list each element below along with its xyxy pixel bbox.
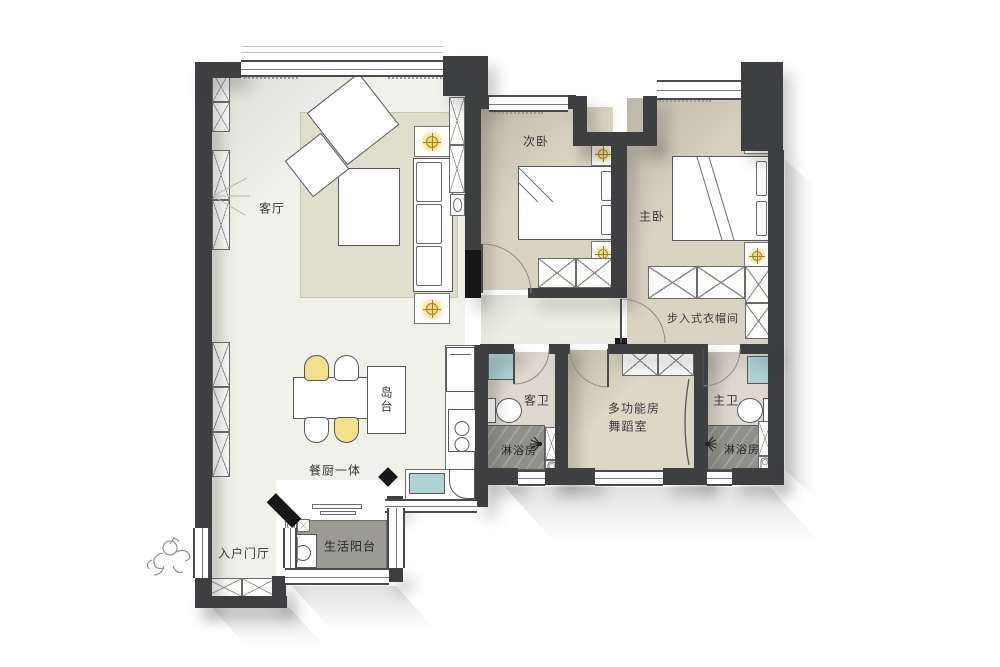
curtain-icon xyxy=(388,74,442,79)
lamp-icon xyxy=(748,247,766,265)
wall-bath-top xyxy=(608,344,703,354)
wall-bath-top xyxy=(740,344,775,354)
floor-plan-canvas: 岛台 xyxy=(0,0,1000,667)
wall-bedroom-bottom xyxy=(528,288,613,298)
entry-foyer-label: 入户门厅 xyxy=(218,545,270,562)
wardrobe-cell xyxy=(538,258,576,288)
pillow xyxy=(756,161,767,196)
wall-bottom xyxy=(663,468,707,485)
coffee-table xyxy=(338,168,400,246)
wall-entry-corner xyxy=(272,576,286,606)
guest-bathroom-sink xyxy=(488,353,514,380)
guest-shower-label: 淋浴房 xyxy=(501,442,537,458)
guest-toilet-bowl xyxy=(496,398,522,423)
secondary-bedroom-label: 次卧 xyxy=(523,133,549,150)
shadow-streak xyxy=(505,487,822,545)
storage-cabinet-cell xyxy=(212,200,230,250)
balcony-side-window xyxy=(387,508,405,568)
bath-window xyxy=(707,470,732,486)
sofa xyxy=(413,158,453,292)
wall-right xyxy=(768,150,784,485)
closet-wardrobe-cell xyxy=(697,266,745,299)
bath-window xyxy=(518,470,545,486)
dining-table xyxy=(293,377,368,419)
wall-pillar xyxy=(443,56,488,96)
wall-bedroom-divider xyxy=(611,146,627,298)
master-shower-label: 淋浴房 xyxy=(724,441,760,457)
dining-chair xyxy=(304,355,329,381)
balcony-bottom-window xyxy=(285,568,389,585)
shadow-streak xyxy=(785,160,817,499)
dance-studio-label: 舞蹈室 xyxy=(608,418,647,435)
side-table xyxy=(414,126,450,157)
wall-living-bedroom-dark xyxy=(465,250,481,298)
multifunction-window xyxy=(595,470,663,486)
utility-balcony-label: 生活阳台 xyxy=(324,538,376,555)
kitchen-island-label: 岛台 xyxy=(378,386,395,414)
lamp-icon xyxy=(594,145,612,163)
drying-rack xyxy=(312,504,362,509)
entry-door-opening xyxy=(193,528,210,578)
lamp-icon xyxy=(420,130,444,154)
master-bed xyxy=(672,156,770,241)
wall-top-left-corner xyxy=(195,62,241,78)
master-toilet-bowl xyxy=(737,398,763,423)
multifunction-room-label: 多功能房 xyxy=(608,400,660,417)
nightstand xyxy=(744,242,770,269)
sofa-cushion xyxy=(416,246,442,286)
dining-chair xyxy=(304,417,329,443)
wardrobe-cell xyxy=(576,258,613,288)
kitchen-sink xyxy=(409,473,445,494)
wall-u-niche-bottom xyxy=(573,132,657,146)
wall-bottom xyxy=(545,468,595,485)
wall-bottom xyxy=(480,468,518,485)
living-room-label: 客厅 xyxy=(259,200,285,217)
guest-toilet-tank xyxy=(487,398,496,423)
dining-kitchen-label: 餐厨一体 xyxy=(309,462,361,479)
wall-bath-divider xyxy=(555,344,568,480)
master-bathroom-label: 主卫 xyxy=(713,392,739,409)
pillow xyxy=(756,201,767,236)
storage-cabinet-cell xyxy=(212,150,230,200)
window-sill-line xyxy=(241,46,443,47)
storage-cabinet-cell xyxy=(212,432,230,477)
shadow-streak xyxy=(212,608,326,648)
stove xyxy=(448,409,476,452)
tall-cabinet-cell xyxy=(449,145,465,193)
master-bedroom-label: 主卧 xyxy=(639,208,665,225)
wall-top-right-corner xyxy=(741,62,783,151)
wall-jamb xyxy=(481,95,489,109)
curtain-icon xyxy=(244,74,298,79)
window-sill-line xyxy=(241,52,443,53)
dining-chair xyxy=(334,355,359,381)
storage-cabinet-cell xyxy=(212,387,230,432)
guest-bathroom-label: 客卫 xyxy=(524,392,550,409)
entry-foyer-floor xyxy=(210,478,276,582)
secondary-bed xyxy=(518,166,615,240)
wall-bath-divider xyxy=(694,344,708,480)
balcony-left-window xyxy=(283,528,297,568)
walk-in-closet-label: 步入式衣帽间 xyxy=(667,310,739,326)
corridor-floor xyxy=(481,295,622,344)
mascot-doodle xyxy=(148,538,190,575)
shadow-streak xyxy=(292,586,437,632)
shoe-cabinet-cell xyxy=(242,578,276,597)
side-table xyxy=(414,293,450,324)
kitchen-island: 岛台 xyxy=(367,366,406,434)
refrigerator xyxy=(446,347,475,392)
wall-left xyxy=(195,62,212,608)
tall-cabinet-cell xyxy=(449,97,465,145)
sofa-cushion xyxy=(416,204,442,244)
lamp-icon xyxy=(420,297,444,321)
wall-bottom xyxy=(732,468,775,485)
water-heater xyxy=(450,194,465,216)
storage-cabinet-cell xyxy=(212,102,230,132)
storage-cabinet-cell xyxy=(212,342,230,387)
sofa-cushion xyxy=(416,162,442,202)
dining-chair xyxy=(334,417,359,443)
wall-balcony-bottom-right xyxy=(387,566,403,582)
closet-wardrobe-cell xyxy=(648,266,697,299)
drying-rack xyxy=(320,511,356,515)
curtain-icon xyxy=(659,97,711,102)
curtain-icon xyxy=(491,109,543,114)
